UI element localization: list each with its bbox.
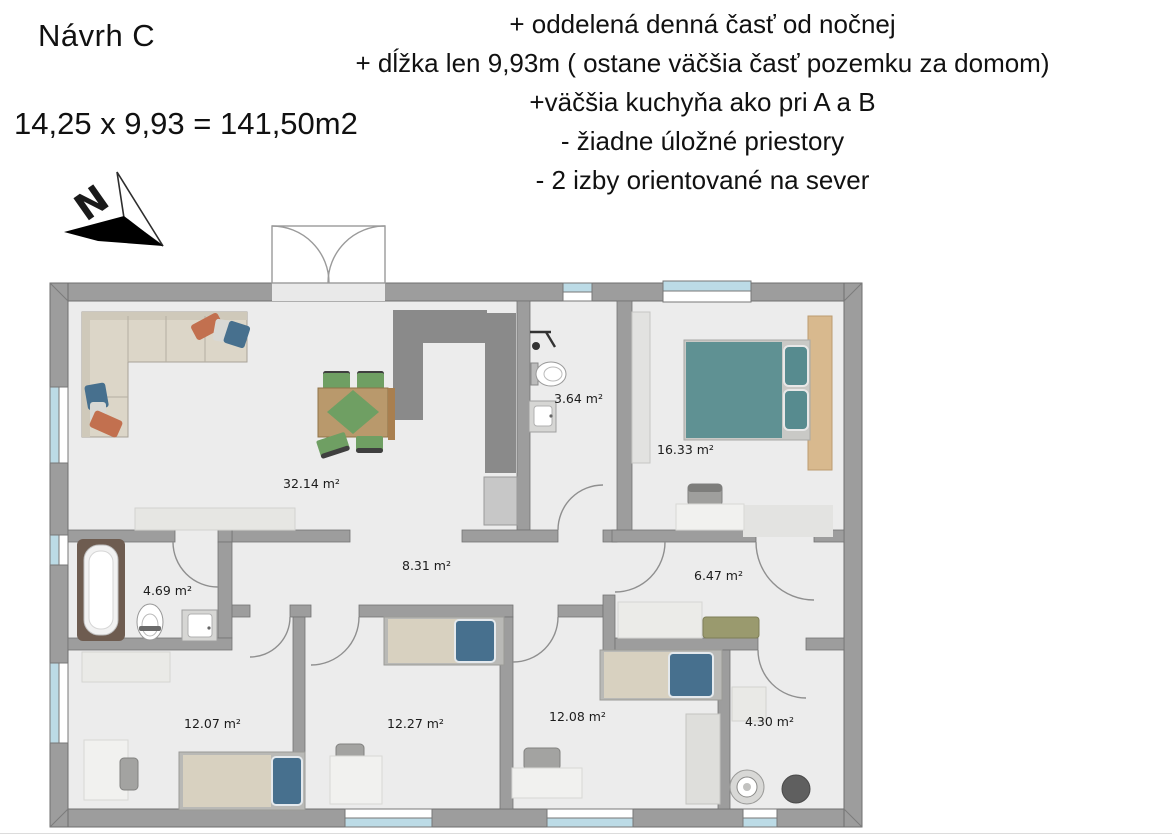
room-label-bedroom-master: 16.33 m² xyxy=(657,442,714,457)
washing-machine-icon xyxy=(730,770,764,804)
north-compass-icon: N xyxy=(64,172,163,246)
wardrobe xyxy=(686,714,720,804)
room-label-hall: 6.47 m² xyxy=(694,568,743,583)
room-label-bedroom1: 12.07 m² xyxy=(184,716,241,731)
room-label-bedroom3: 12.08 m² xyxy=(549,709,606,724)
room-label-bedroom2: 12.27 m² xyxy=(387,716,444,731)
chair xyxy=(356,448,383,453)
toilet-icon xyxy=(531,362,566,386)
toilet-icon xyxy=(137,604,163,640)
entrance-door xyxy=(272,226,385,301)
fridge xyxy=(484,477,517,525)
window-top-small xyxy=(563,283,592,301)
bench xyxy=(703,617,759,638)
room-label-utility: 4.30 m² xyxy=(745,714,794,729)
room-label-corridor: 8.31 m² xyxy=(402,558,451,573)
floor-plan-page: Návrh C 14,25 x 9,93 = 141,50m2 + oddele… xyxy=(0,0,1172,840)
double-bed xyxy=(686,342,782,438)
desk xyxy=(512,768,582,798)
window-bottom-1 xyxy=(345,809,432,827)
wardrobe xyxy=(632,312,650,463)
single-bed xyxy=(183,755,271,807)
room-label-living: 32.14 m² xyxy=(283,476,340,491)
boiler-icon xyxy=(782,775,810,803)
bed-pillow xyxy=(784,390,808,430)
sideboard xyxy=(135,508,295,530)
room-label-bath-main: 4.69 m² xyxy=(143,583,192,598)
sink-icon xyxy=(182,610,217,641)
desk xyxy=(676,504,744,530)
bed-pillow xyxy=(272,757,302,805)
headboard xyxy=(808,316,832,470)
bottom-divider xyxy=(0,833,1172,834)
window-bottom-2 xyxy=(547,809,633,827)
desk xyxy=(330,756,382,804)
window-bottom-3 xyxy=(743,809,777,827)
bed-pillow xyxy=(455,620,495,662)
room-label-bath-small: 3.64 m² xyxy=(554,391,603,406)
desk-chair xyxy=(120,758,138,790)
window-left-living xyxy=(50,387,68,463)
wood-shelf xyxy=(388,388,395,440)
cabinet xyxy=(82,652,170,682)
bed-pillow xyxy=(784,346,808,386)
sink-icon xyxy=(529,401,556,432)
window-left-bedroom1 xyxy=(50,663,68,743)
window-left-bath xyxy=(50,535,68,565)
hall-cabinet xyxy=(618,602,702,638)
desk-chair xyxy=(524,748,560,770)
floor-mat xyxy=(743,505,833,537)
bed-pillow xyxy=(669,653,713,697)
window-bedroom xyxy=(663,281,751,302)
